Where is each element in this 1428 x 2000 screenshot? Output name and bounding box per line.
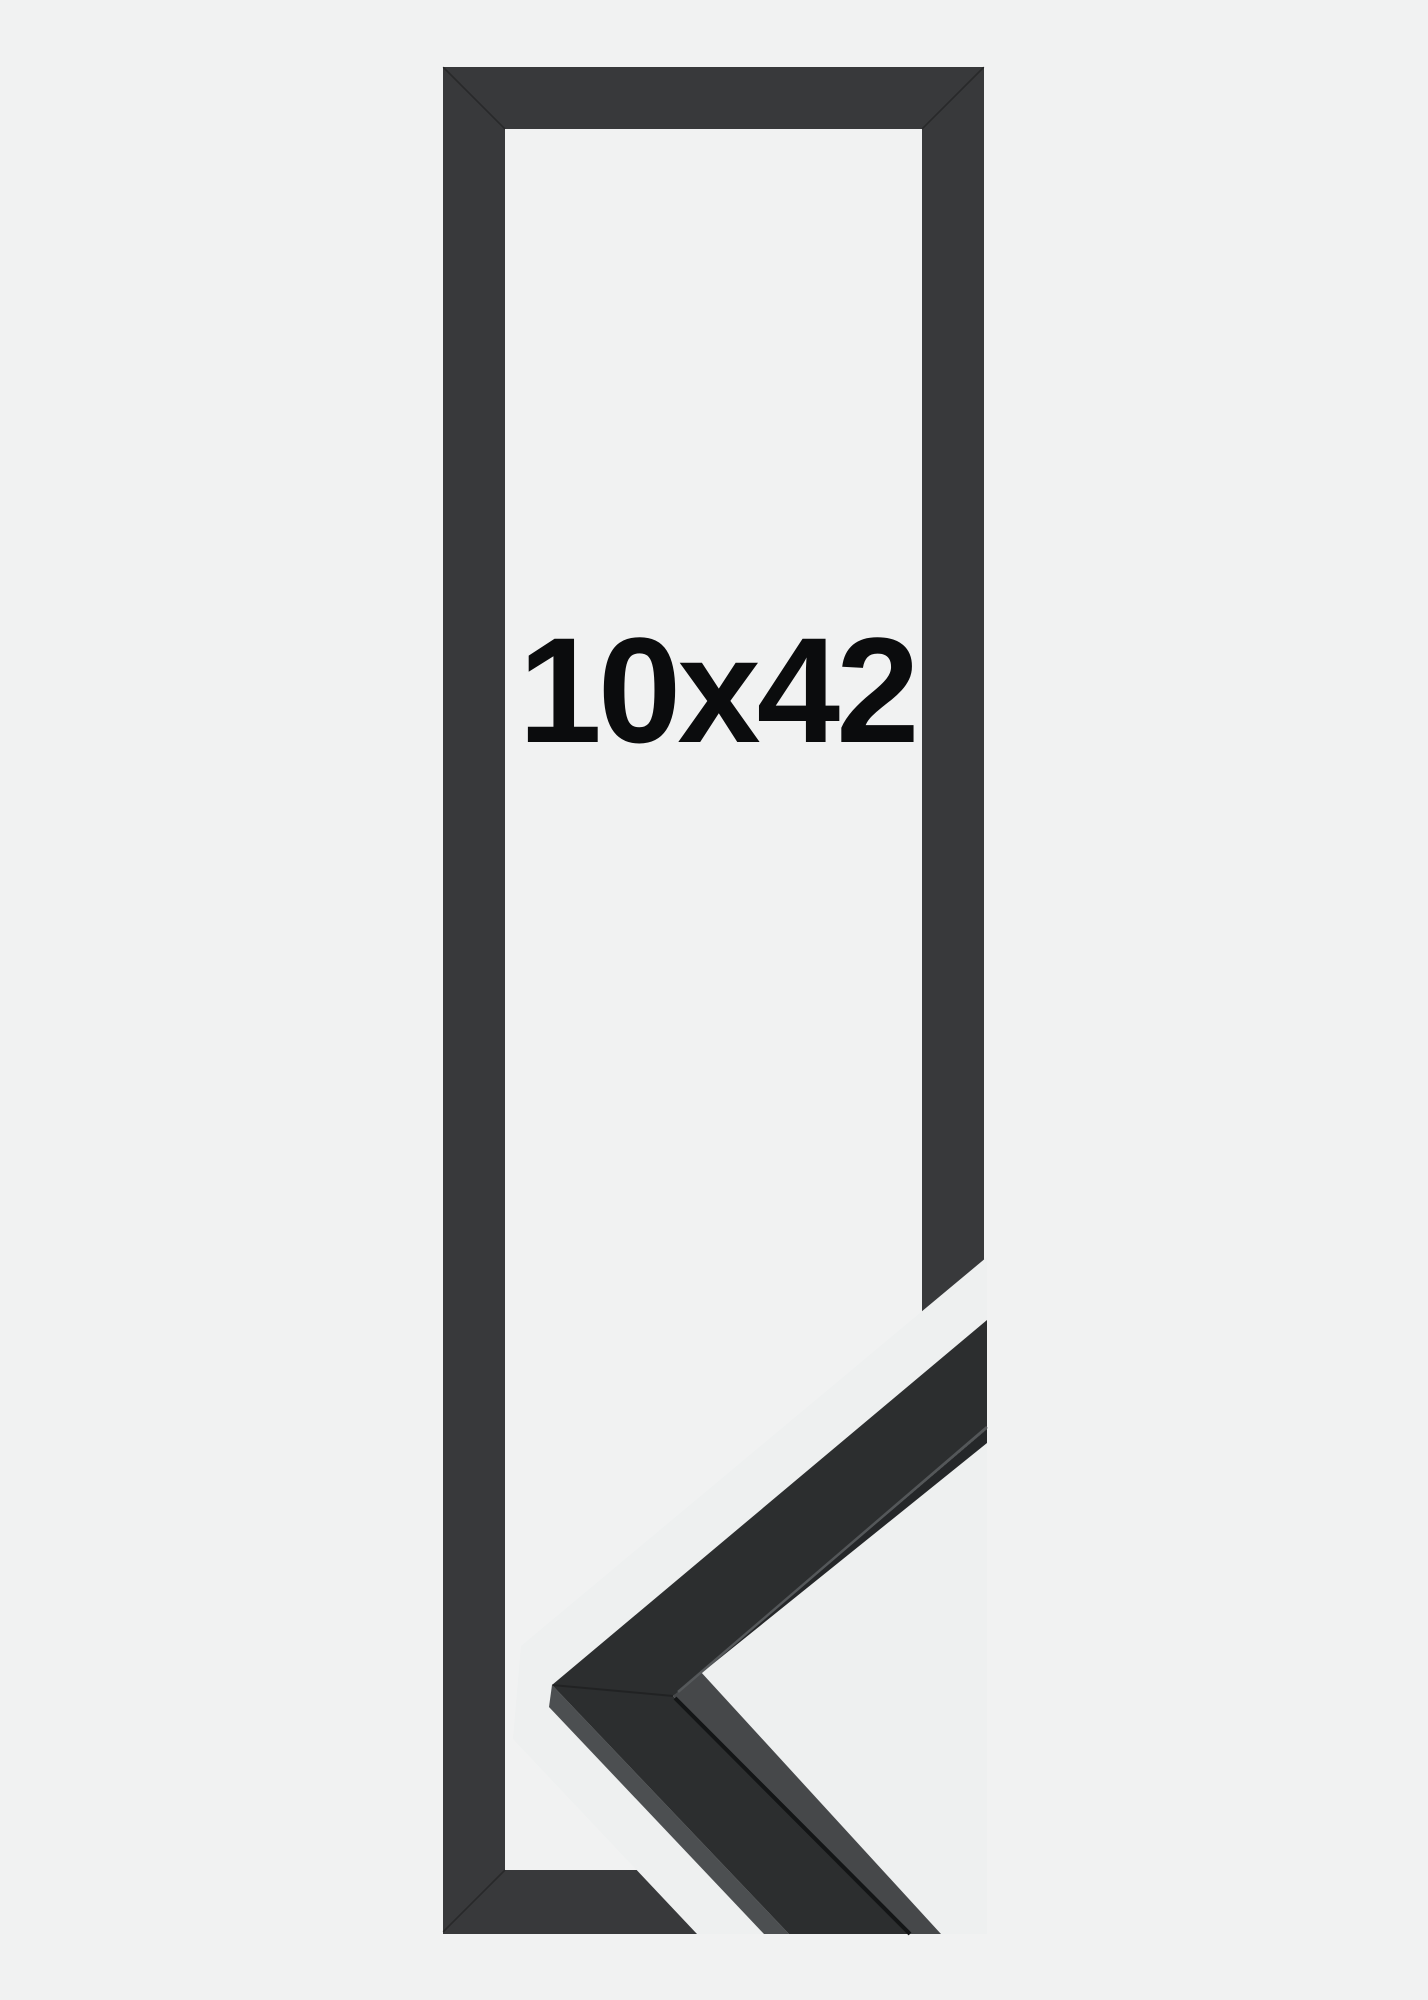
size-label: 10x42 <box>518 615 915 765</box>
frame-photo <box>0 0 1428 2000</box>
product-image: 10x42 <box>0 0 1428 2000</box>
